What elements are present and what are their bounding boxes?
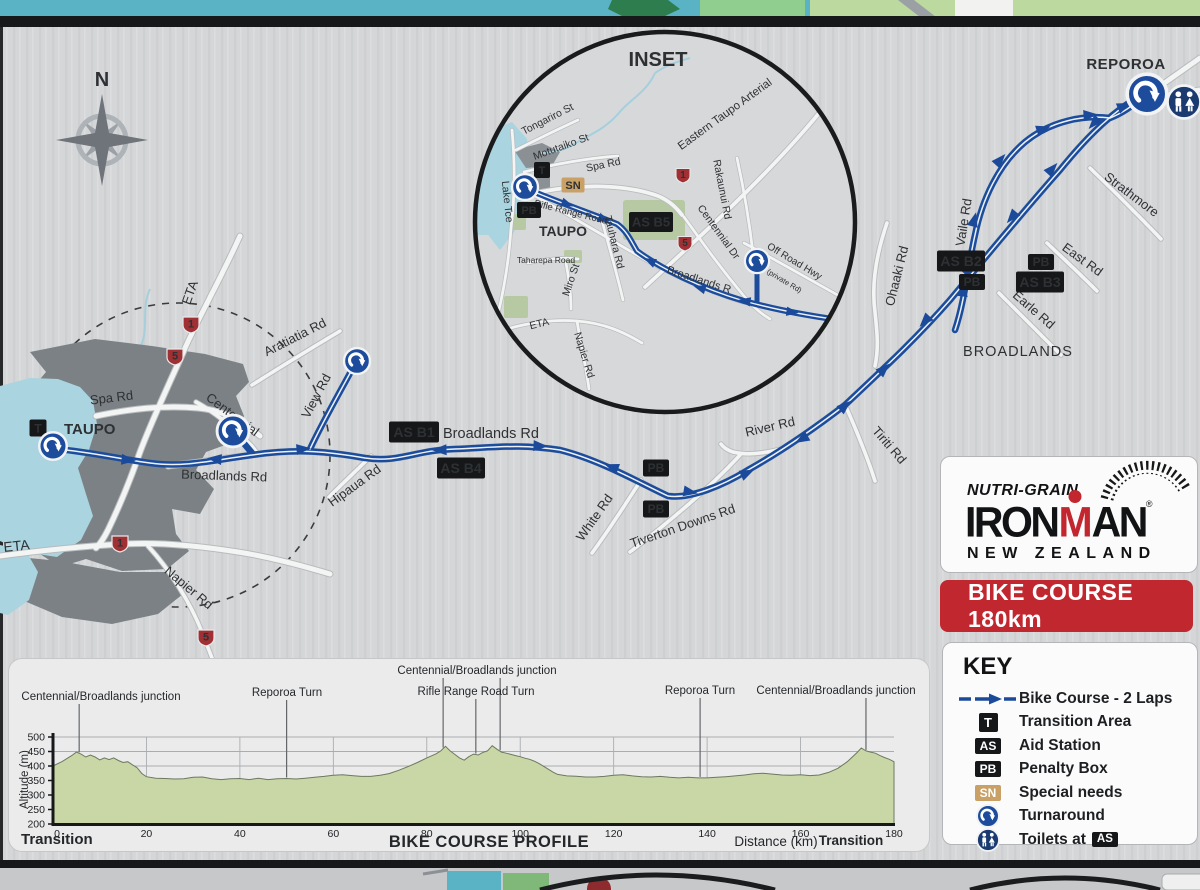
penalty-box-marker: PB (643, 501, 669, 518)
key-label: Special needs (1019, 784, 1122, 802)
elevation-profile-panel: 2002503003504004505000204060801001201401… (8, 658, 930, 852)
adjacent-poster-bottom (0, 860, 1200, 890)
svg-text:5: 5 (203, 631, 209, 643)
svg-text:AS B5: AS B5 (632, 215, 670, 230)
aid-station-b2-marker: AS B2 (937, 251, 985, 272)
y-axis-title: Altitude (m) (19, 750, 31, 809)
transition-label-left: Transition (21, 831, 93, 848)
penalty-box-marker: PB (959, 274, 985, 290)
brand-text-right: AN (1092, 498, 1146, 547)
ironman-logo-panel: NUTRI-GRAIN IRONMAN® NEW ZEALAND (940, 456, 1198, 573)
aid-station-chip: AS (975, 738, 1001, 754)
course-arrow-icon (957, 692, 1019, 706)
registered-mark: ® (1146, 499, 1153, 509)
highway-shield-1: 1 (112, 536, 128, 552)
annotation-label: Rifle Range Road Turn (418, 686, 535, 698)
svg-text:120: 120 (605, 828, 623, 840)
brand-text-left: IRON (965, 498, 1058, 547)
svg-text:PB: PB (648, 461, 665, 475)
aid-station-b3-marker: AS B3 (1016, 272, 1064, 293)
key-panel: KEY Bike Course - 2 Laps T Transition Ar… (942, 642, 1198, 845)
road-label-broadlands-rd: Broadlands Rd (181, 467, 267, 485)
m-dot-icon: M (1059, 499, 1091, 546)
poster-top-border (0, 16, 1200, 27)
svg-text:5: 5 (682, 238, 688, 249)
svg-text:1: 1 (680, 170, 686, 181)
silver-fern-icon (1099, 459, 1191, 501)
road-label-broadlands-rd: Broadlands Rd (443, 426, 539, 442)
svg-text:T: T (34, 422, 42, 436)
svg-text:140: 140 (698, 828, 716, 840)
toilets-icon-reporoa (1168, 86, 1200, 119)
svg-text:PB: PB (521, 205, 536, 217)
special-needs-chip: SN (975, 785, 1001, 801)
key-label: Penalty Box (1019, 760, 1108, 778)
aid-station-b4-marker: AS B4 (437, 458, 485, 479)
svg-text:1: 1 (188, 318, 194, 330)
highway-shield-5: 5 (678, 237, 692, 252)
turnaround-icon-centennial (217, 415, 249, 447)
town-label-taupo: TAUPO (64, 421, 116, 438)
turnaround-icon-taupo (39, 432, 67, 460)
ironman-wordmark: IRONMAN® (965, 499, 1153, 546)
annotation-label: Centennial/Broadlands junction (397, 665, 556, 677)
region-wordmark: NEW ZEALAND (967, 545, 1157, 563)
svg-text:60: 60 (327, 828, 339, 840)
svg-text:T: T (539, 165, 546, 177)
key-row-special-needs: SN Special needs (957, 781, 1197, 805)
course-title-banner: BIKE COURSE 180km (940, 580, 1193, 632)
svg-text:PB: PB (648, 502, 665, 516)
key-label: Bike Course - 2 Laps (1019, 690, 1172, 708)
annotation-label: Reporoa Turn (665, 685, 735, 697)
svg-text:500: 500 (27, 732, 45, 744)
svg-text:180: 180 (885, 828, 903, 840)
annotation-label: Centennial/Broadlands junction (756, 685, 915, 697)
chart-title: BIKE COURSE PROFILE (389, 833, 589, 852)
key-row-bike-course: Bike Course - 2 Laps (957, 687, 1197, 711)
turnaround-icon-view-rd (344, 348, 370, 374)
inset-title: INSET (629, 49, 688, 71)
penalty-box-marker: PB (1028, 254, 1054, 270)
annotation-label: Centennial/Broadlands junction (21, 691, 180, 703)
key-label: Aid Station (1019, 737, 1101, 755)
key-row-toilets: Toilets at AS (957, 828, 1197, 852)
town-label-reporoa: REPOROA (1086, 56, 1165, 73)
svg-text:PB: PB (1033, 255, 1050, 269)
key-row-aid-station: AS Aid Station (957, 734, 1197, 758)
compass-north-label: N (95, 69, 109, 91)
special-needs-marker: SN (562, 178, 585, 193)
key-row-turnaround: Turnaround (957, 805, 1197, 829)
key-label: Toilets at (1019, 831, 1086, 849)
svg-text:AS B4: AS B4 (440, 460, 481, 476)
svg-text:1: 1 (117, 537, 123, 549)
key-title: KEY (963, 653, 1197, 681)
turnaround-icon (957, 804, 1019, 828)
transition-marker: T (30, 420, 47, 437)
annotation-label: Reporoa Turn (252, 687, 322, 699)
transition-marker-inset: T (534, 162, 550, 178)
turnaround-icon-reporoa (1127, 74, 1167, 114)
adjacent-poster-top (0, 0, 1200, 17)
turnaround-icon-off-road-hwy (745, 249, 769, 273)
aid-station-b1-marker: AS B1 (389, 422, 439, 443)
penalty-box-marker: PB (643, 460, 669, 477)
svg-text:PB: PB (964, 275, 981, 289)
svg-text:AS B3: AS B3 (1019, 274, 1060, 290)
town-label-broadlands: BROADLANDS (963, 344, 1073, 360)
highway-shield-1: 1 (183, 317, 199, 333)
svg-text:SN: SN (565, 180, 580, 192)
key-row-penalty-box: PB Penalty Box (957, 758, 1197, 782)
penalty-box-chip: PB (975, 761, 1001, 777)
svg-text:5: 5 (172, 350, 178, 362)
svg-text:AS B2: AS B2 (940, 253, 981, 269)
highway-shield-5: 5 (198, 630, 214, 646)
transition-label-right: Transition (819, 833, 884, 848)
key-row-transition: T Transition Area (957, 711, 1197, 735)
bike-course-poster: N (0, 0, 1200, 890)
course-title: BIKE COURSE 180km (940, 579, 1193, 633)
town-label-taupo-inset: TAUPO (539, 223, 587, 239)
key-label: Turnaround (1019, 807, 1105, 825)
svg-text:20: 20 (141, 828, 153, 840)
svg-text:AS B1: AS B1 (393, 424, 434, 440)
key-label: Transition Area (1019, 713, 1131, 731)
penalty-box-marker-inset: PB (517, 202, 541, 218)
toilets-icon (957, 828, 1019, 852)
svg-text:200: 200 (27, 819, 45, 831)
svg-text:40: 40 (234, 828, 246, 840)
road-label-eta-west: ETA (3, 536, 31, 555)
x-axis-title: Distance (km) (734, 834, 817, 849)
road-label-taharepa-road: Taharepa Road (517, 255, 575, 265)
inset-map: INSET Tongariro St Motutaiko St Spa Rd E… (470, 32, 855, 412)
turnaround-icon-rifle-range (512, 174, 538, 200)
aid-station-chip: AS (1092, 832, 1118, 847)
highway-shield-5: 5 (167, 349, 183, 365)
aid-station-b5-marker: AS B5 (629, 212, 673, 232)
transition-chip: T (979, 713, 998, 732)
highway-shield-1: 1 (676, 169, 690, 184)
